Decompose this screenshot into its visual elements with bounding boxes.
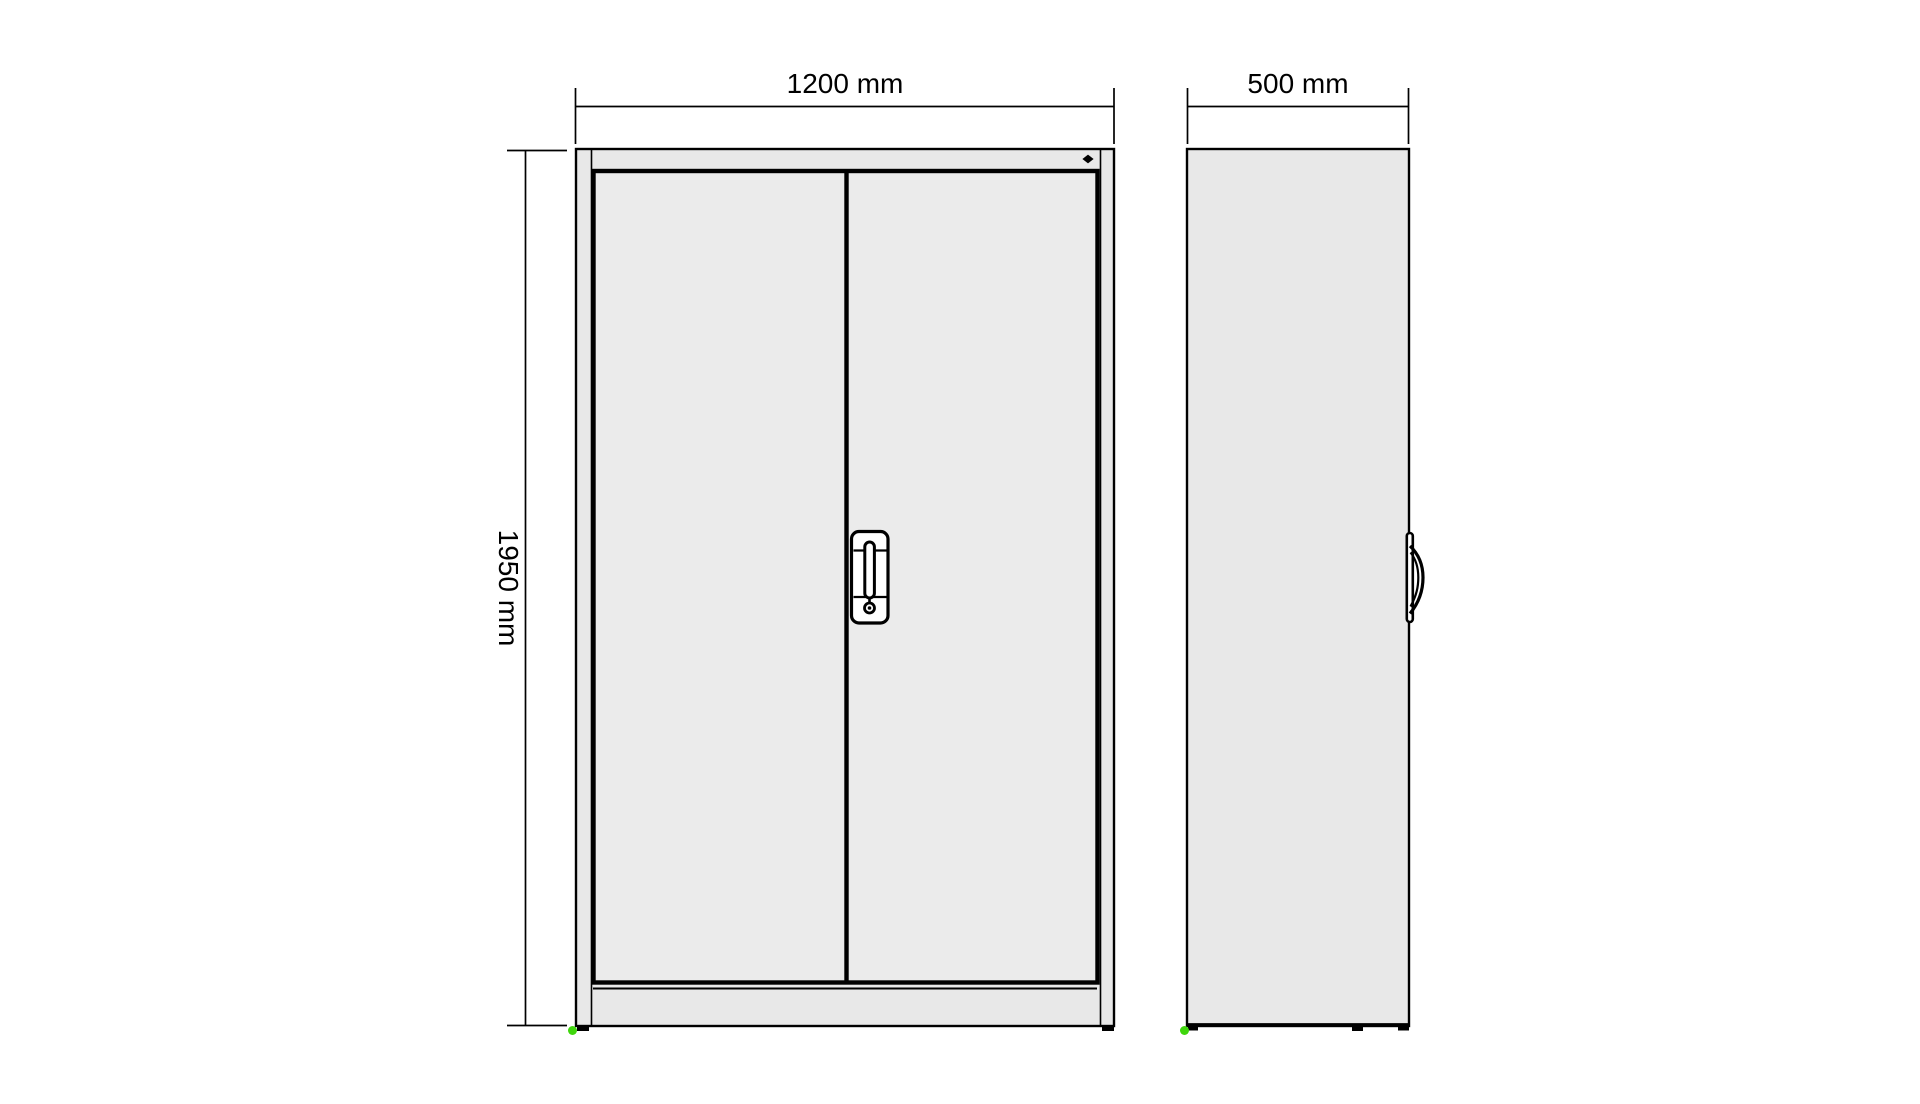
side-handle (1407, 533, 1423, 622)
handle-keyhole-pin (868, 606, 872, 610)
front-handle (852, 532, 889, 624)
depth-dim-label: 500 mm (1247, 68, 1348, 100)
width-dim-label: 1200 mm (787, 68, 904, 100)
front-right-foot (1102, 1026, 1114, 1032)
height-dim-label: 1950 mm (492, 530, 524, 647)
front-corner-marker-dot (568, 1026, 577, 1035)
cabinet-technical-drawing (0, 0, 1920, 1104)
side-mid-foot (1352, 1026, 1363, 1032)
side-view (1180, 149, 1423, 1035)
side-outer-frame (1187, 149, 1409, 1026)
front-view (568, 149, 1114, 1035)
handle-grip-bar (865, 542, 875, 598)
side-corner-marker-dot (1180, 1026, 1189, 1035)
side-right-foot (1398, 1026, 1409, 1031)
front-left-foot (577, 1026, 589, 1032)
side-left-foot (1188, 1026, 1198, 1031)
drawing-canvas: 1200 mm 500 mm 1950 mm (0, 0, 1920, 1104)
